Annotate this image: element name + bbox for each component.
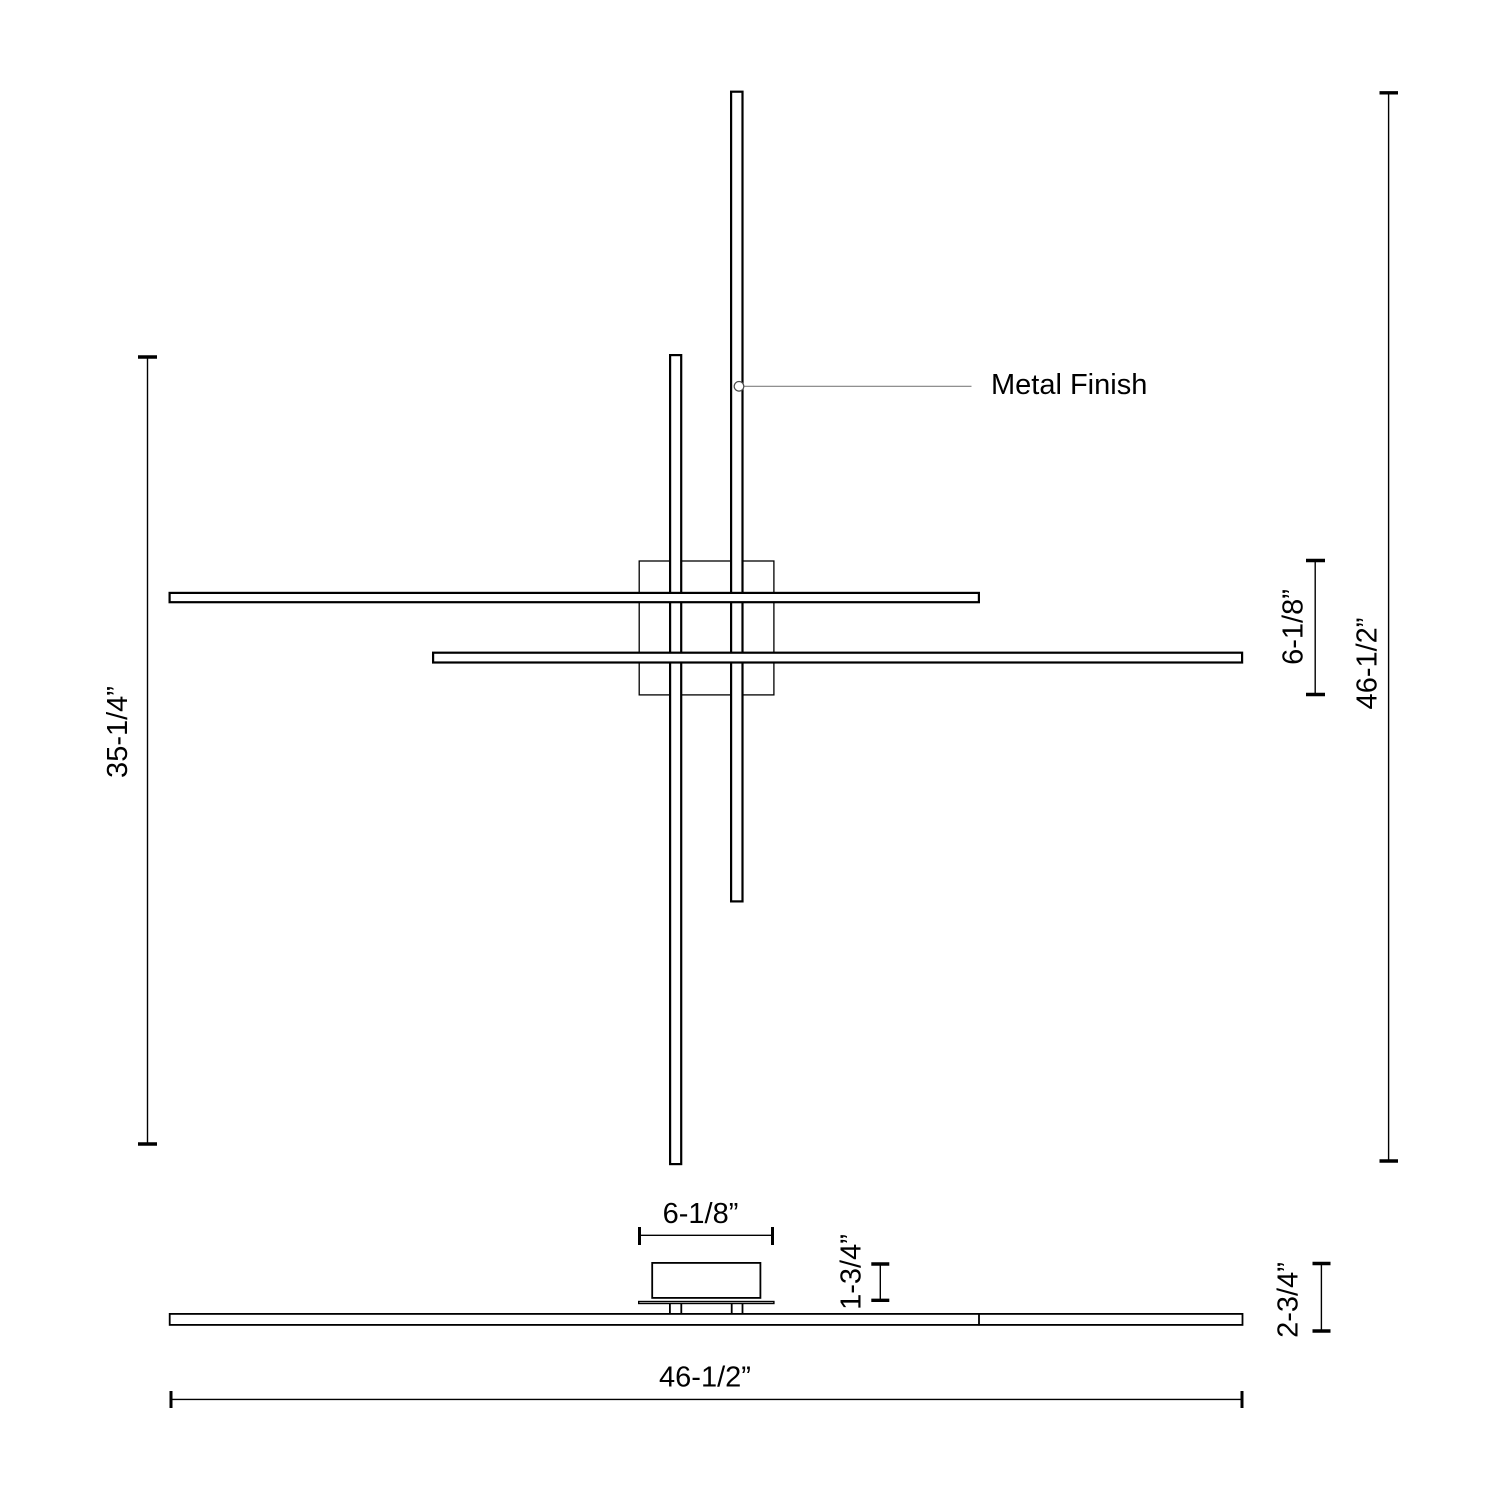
svg-text:46-1/2”: 46-1/2” [659,1361,751,1393]
svg-text:46-1/2”: 46-1/2” [1351,618,1383,710]
svg-text:Metal Finish: Metal Finish [991,369,1147,401]
svg-text:6-1/8”: 6-1/8” [663,1198,739,1230]
svg-text:2-3/4”: 2-3/4” [1272,1262,1304,1338]
svg-text:1-3/4”: 1-3/4” [835,1234,867,1310]
svg-text:35-1/4”: 35-1/4” [102,686,134,778]
svg-text:6-1/8”: 6-1/8” [1278,589,1310,665]
